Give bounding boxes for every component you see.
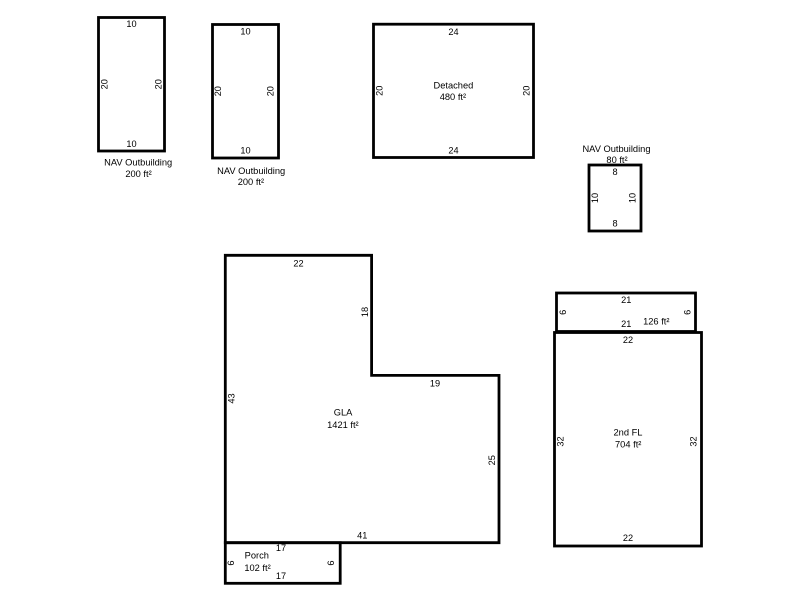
svg-text:6: 6: [326, 560, 336, 565]
svg-text:32: 32: [556, 436, 566, 446]
svg-text:20: 20: [213, 86, 223, 96]
svg-text:41: 41: [357, 530, 367, 540]
svg-text:21: 21: [621, 295, 631, 305]
svg-text:6: 6: [683, 310, 693, 315]
svg-text:20: 20: [522, 86, 532, 96]
svg-text:102 ft²: 102 ft²: [244, 563, 270, 573]
svg-text:17: 17: [276, 543, 286, 553]
svg-text:20: 20: [265, 86, 275, 96]
svg-text:10: 10: [590, 193, 600, 203]
svg-text:32: 32: [689, 436, 699, 446]
svg-text:10: 10: [126, 139, 136, 149]
svg-text:22: 22: [293, 259, 303, 269]
svg-text:22: 22: [623, 533, 633, 543]
svg-text:20: 20: [99, 79, 109, 89]
svg-text:24: 24: [448, 145, 458, 155]
svg-text:Porch: Porch: [245, 551, 269, 561]
svg-text:NAV Outbuilding: NAV Outbuilding: [217, 166, 285, 176]
svg-text:480 ft²: 480 ft²: [440, 92, 466, 102]
svg-text:18: 18: [360, 307, 370, 317]
svg-text:43: 43: [226, 393, 236, 403]
svg-text:20: 20: [375, 86, 385, 96]
svg-text:21: 21: [621, 319, 631, 329]
svg-text:1421 ft²: 1421 ft²: [327, 420, 359, 430]
svg-text:2nd FL: 2nd FL: [614, 428, 643, 438]
svg-text:200 ft²: 200 ft²: [125, 169, 151, 179]
svg-text:126 ft²: 126 ft²: [643, 317, 669, 327]
svg-text:10: 10: [240, 27, 250, 37]
svg-text:6: 6: [558, 310, 568, 315]
svg-text:25: 25: [487, 455, 497, 465]
svg-text:17: 17: [276, 571, 286, 581]
svg-text:8: 8: [612, 219, 617, 229]
svg-text:8: 8: [612, 167, 617, 177]
svg-text:Detached: Detached: [433, 81, 473, 91]
svg-text:704 ft²: 704 ft²: [615, 440, 641, 450]
svg-text:NAV Outbuilding: NAV Outbuilding: [582, 144, 650, 154]
svg-text:NAV Outbuilding: NAV Outbuilding: [104, 158, 172, 168]
svg-text:22: 22: [623, 335, 633, 345]
svg-text:10: 10: [126, 19, 136, 29]
svg-text:6: 6: [226, 560, 236, 565]
svg-text:20: 20: [153, 79, 163, 89]
svg-text:10: 10: [628, 193, 638, 203]
svg-text:19: 19: [430, 378, 440, 388]
svg-text:200 ft²: 200 ft²: [238, 177, 264, 187]
svg-text:GLA: GLA: [334, 408, 353, 418]
svg-text:10: 10: [240, 146, 250, 156]
svg-text:24: 24: [448, 27, 458, 37]
